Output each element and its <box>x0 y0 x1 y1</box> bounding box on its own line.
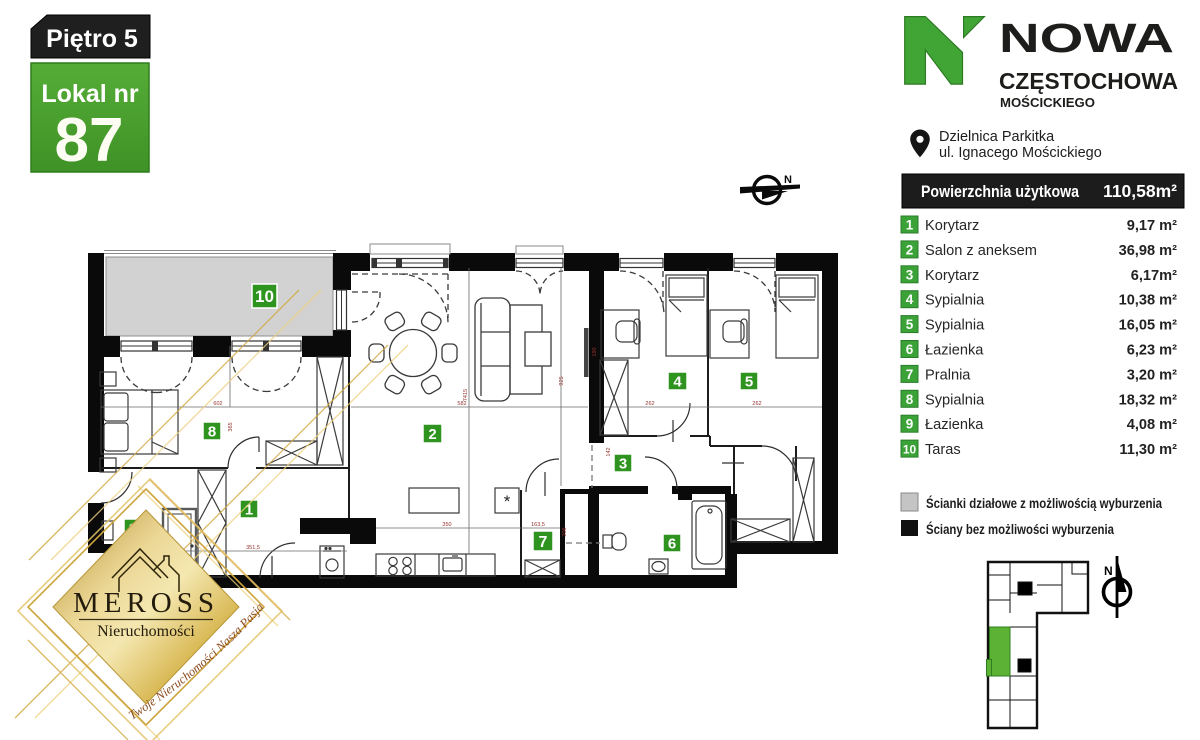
svg-text:MEROSS: MEROSS <box>73 587 219 619</box>
svg-text:18,32 m²: 18,32 m² <box>1119 392 1178 408</box>
svg-text:Ściany bez możliwości wyburzen: Ściany bez możliwości wyburzenia <box>926 522 1114 537</box>
svg-text:1: 1 <box>906 218 914 233</box>
svg-text:6: 6 <box>668 536 676 553</box>
svg-text:351,5: 351,5 <box>246 545 260 551</box>
svg-text:9: 9 <box>906 417 914 432</box>
svg-text:Piętro 5: Piętro 5 <box>46 25 138 53</box>
svg-text:Pralnia: Pralnia <box>925 367 971 383</box>
svg-text:7415: 7415 <box>463 389 469 401</box>
svg-text:36,98 m²: 36,98 m² <box>1119 243 1178 259</box>
svg-text:365: 365 <box>228 422 234 431</box>
svg-text:3,20 m²: 3,20 m² <box>1127 367 1177 383</box>
svg-text:10,38 m²: 10,38 m² <box>1119 293 1178 309</box>
svg-text:CZĘSTOCHOWA: CZĘSTOCHOWA <box>999 68 1178 94</box>
svg-text:7: 7 <box>539 534 548 551</box>
svg-text:11,30 m²: 11,30 m² <box>1119 442 1177 458</box>
svg-text:7: 7 <box>906 367 914 382</box>
svg-text:N: N <box>784 174 792 186</box>
svg-text:6,23 m²: 6,23 m² <box>1127 343 1177 359</box>
svg-text:190: 190 <box>592 347 598 356</box>
svg-text:Sypialnia: Sypialnia <box>925 392 985 408</box>
svg-text:602: 602 <box>213 401 222 407</box>
svg-text:3: 3 <box>906 267 914 282</box>
svg-text:Łazienka: Łazienka <box>925 343 984 359</box>
svg-text:5: 5 <box>745 374 753 391</box>
svg-text:2: 2 <box>906 242 914 257</box>
svg-text:4: 4 <box>906 292 914 307</box>
svg-text:Sypialnia: Sypialnia <box>925 318 985 334</box>
svg-text:2: 2 <box>428 426 436 443</box>
svg-text:Korytarz: Korytarz <box>925 268 979 284</box>
svg-text:208: 208 <box>562 527 568 536</box>
svg-text:8: 8 <box>208 424 216 441</box>
svg-text:NOWA: NOWA <box>999 15 1174 61</box>
svg-text:Dzielnica Parkitka: Dzielnica Parkitka <box>939 129 1055 145</box>
svg-text:262: 262 <box>645 401 654 407</box>
svg-text:Sypialnia: Sypialnia <box>925 293 985 309</box>
svg-text:163,5: 163,5 <box>531 522 545 528</box>
svg-text:Ścianki działowe z możliwością: Ścianki działowe z możliwością wyburzeni… <box>926 496 1162 511</box>
svg-text:Taras: Taras <box>925 442 961 458</box>
svg-text:9,17 m²: 9,17 m² <box>1127 218 1177 234</box>
svg-text:Nieruchomości: Nieruchomości <box>97 623 195 640</box>
svg-text:10: 10 <box>255 287 274 306</box>
svg-text:925: 925 <box>559 376 565 385</box>
svg-text:Salon z aneksem: Salon z aneksem <box>925 243 1037 259</box>
svg-text:87: 87 <box>55 106 124 175</box>
svg-text:142: 142 <box>606 447 612 456</box>
svg-text:Powierzchnia użytkowa: Powierzchnia użytkowa <box>921 182 1079 201</box>
svg-text:10: 10 <box>903 443 917 457</box>
svg-text:ul. Ignacego Mościckiego: ul. Ignacego Mościckiego <box>939 145 1102 161</box>
svg-text:350: 350 <box>442 522 451 528</box>
svg-text:110,58m²: 110,58m² <box>1103 181 1177 201</box>
svg-text:16,05 m²: 16,05 m² <box>1119 318 1178 334</box>
svg-text:4,08 m²: 4,08 m² <box>1127 417 1177 433</box>
svg-text:MOŚCICKIEGO: MOŚCICKIEGO <box>1000 95 1095 110</box>
svg-text:8: 8 <box>906 392 914 407</box>
svg-text:6,17m²: 6,17m² <box>1131 268 1177 284</box>
svg-text:6: 6 <box>906 342 914 357</box>
svg-text:N: N <box>1104 564 1113 578</box>
svg-text:4: 4 <box>673 374 682 391</box>
svg-text:Łazienka: Łazienka <box>925 417 984 433</box>
svg-text:5: 5 <box>906 317 914 332</box>
svg-text:*: * <box>504 492 511 511</box>
svg-text:Korytarz: Korytarz <box>925 218 979 234</box>
svg-text:262: 262 <box>752 401 761 407</box>
svg-text:Lokal nr: Lokal nr <box>41 80 139 108</box>
svg-text:3: 3 <box>619 456 627 473</box>
